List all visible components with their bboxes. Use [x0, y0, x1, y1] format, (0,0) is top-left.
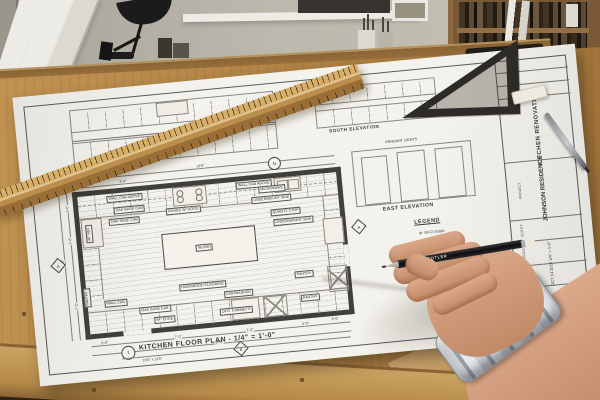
- burner: [177, 196, 185, 204]
- dimension: 7'-6": [68, 237, 73, 246]
- cabinet-stack: [361, 155, 391, 205]
- picture-frame: [298, 0, 390, 13]
- pantry-door: [434, 146, 467, 198]
- marker-letter: A: [357, 224, 360, 229]
- screw: [22, 312, 26, 316]
- dimension: 7'-2": [246, 328, 255, 333]
- phone: [99, 41, 113, 60]
- screw: [92, 388, 96, 392]
- set-square-triangle: [394, 34, 527, 126]
- dimension: 2'-6": [65, 205, 70, 214]
- pantry-plan-crossed: [263, 294, 289, 317]
- pencil-eraser-cap: [525, 238, 536, 247]
- range: [172, 185, 208, 207]
- client-label: CLIENT:: [519, 224, 524, 237]
- east-elevation-drawing: [351, 140, 476, 207]
- project-name: JOHNSON RESIDENCE: [537, 155, 549, 222]
- pencil-in-cup: [382, 17, 384, 33]
- pantry-door: [396, 150, 429, 202]
- burner: [196, 194, 204, 202]
- marker-letter: A: [57, 263, 60, 268]
- dimension: 2'-6": [119, 179, 128, 184]
- project-field: PROJECT: JOHNSON RESIDENCE: [505, 156, 582, 222]
- pencil-lead: [382, 265, 386, 267]
- photo-drafting-table-scene: NORTH ELEVATION SOUTH ELEVATION PENDANT …: [0, 0, 600, 400]
- box: [173, 43, 189, 58]
- pencil-tip: [385, 261, 400, 269]
- sink-bowl: [288, 179, 300, 190]
- white-book: [566, 4, 578, 27]
- picture-frame: [392, 0, 428, 21]
- jar: [158, 38, 172, 58]
- dimension: 7'-2": [74, 302, 79, 311]
- pantry-plan: [322, 217, 344, 245]
- dimension: 14'6": [196, 164, 205, 169]
- screw: [300, 378, 304, 382]
- north-letter: N: [273, 161, 277, 166]
- dimension: 3'-0": [100, 341, 109, 346]
- detail-number: 1: [127, 350, 130, 355]
- dimension: 7'-0": [174, 335, 183, 340]
- project-label: PROJECT:: [517, 182, 523, 199]
- legend-title: LEGEND: [414, 217, 440, 225]
- dimension: 5'-0": [301, 321, 310, 326]
- dimension: 5'-6": [331, 316, 340, 321]
